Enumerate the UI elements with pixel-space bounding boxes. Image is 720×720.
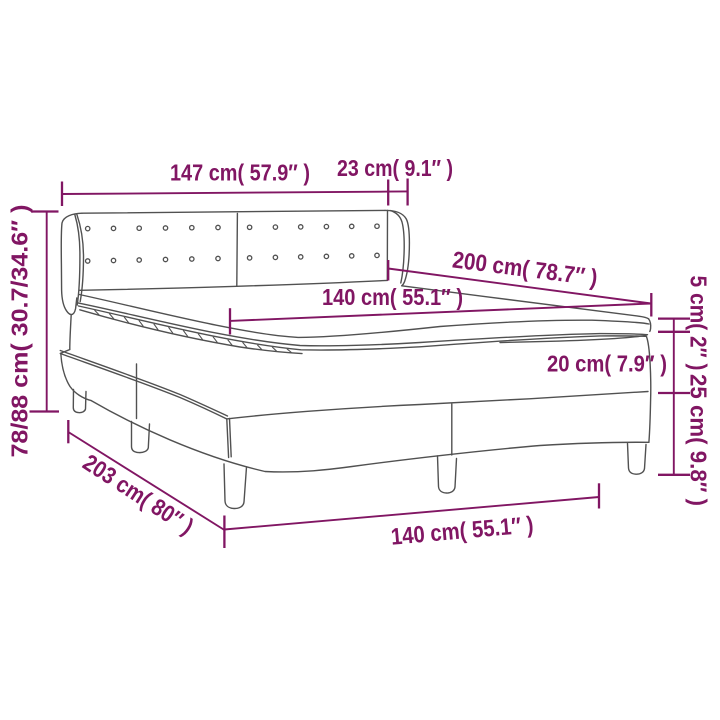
svg-text:25 cm( 9.8″ ): 25 cm( 9.8″ ) <box>686 374 712 506</box>
svg-text:147 cm( 57.9″ ): 147 cm( 57.9″ ) <box>170 160 310 186</box>
svg-text:78/88 cm( 30.7/34.6″ ): 78/88 cm( 30.7/34.6″ ) <box>7 205 33 458</box>
svg-text:5 cm( 2″ ): 5 cm( 2″ ) <box>686 276 712 371</box>
svg-text:140 cm( 55.1″ ): 140 cm( 55.1″ ) <box>322 284 463 310</box>
svg-text:23 cm( 9.1″ ): 23 cm( 9.1″ ) <box>337 155 453 181</box>
svg-text:20 cm( 7.9″ ): 20 cm( 7.9″ ) <box>547 351 667 377</box>
